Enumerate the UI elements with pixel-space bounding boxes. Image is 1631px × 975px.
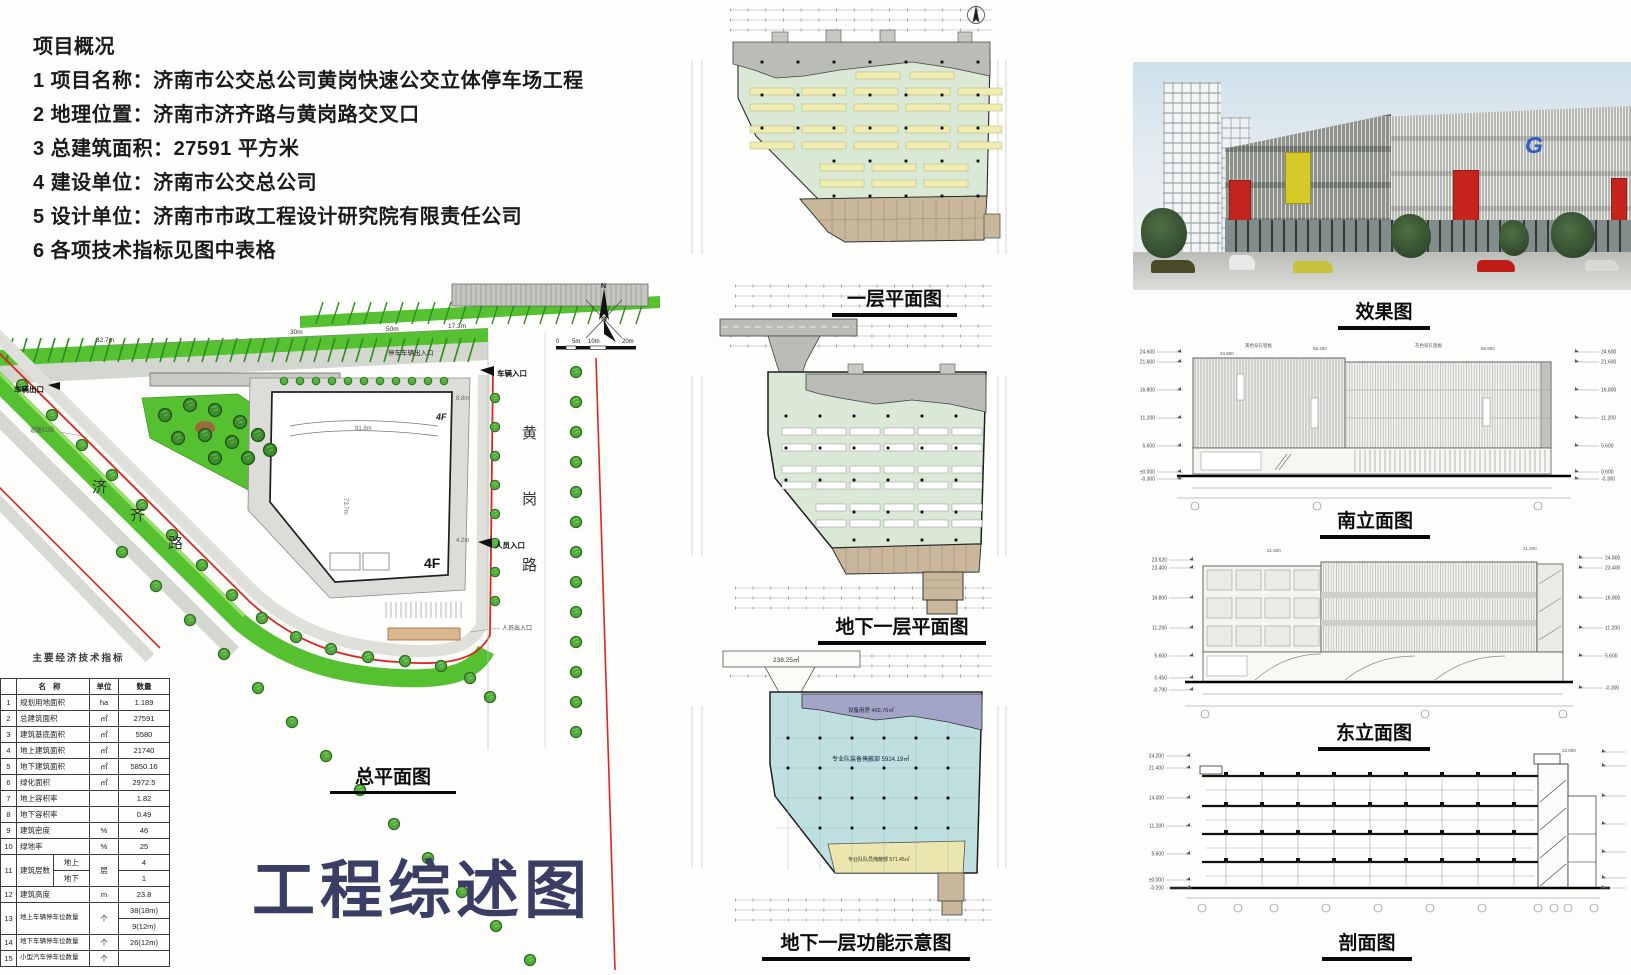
tree-icon bbox=[570, 636, 581, 647]
basement-function-diagram: 238.25㎡ 设备用房 469.76㎡ 专业队装备掩蔽部 5924.19㎡ 专… bbox=[680, 646, 1012, 928]
stall-strip bbox=[854, 104, 898, 111]
svg-text:21.200: 21.200 bbox=[1523, 546, 1537, 551]
road-name-char: 齐 bbox=[130, 507, 145, 524]
column-dot bbox=[833, 94, 836, 97]
tree-icon bbox=[184, 614, 195, 625]
level-value: -0.300 bbox=[1601, 477, 1615, 483]
table-row: 10绿地率%25 bbox=[1, 839, 170, 855]
stall-strip bbox=[918, 520, 948, 527]
tree-icon bbox=[570, 486, 581, 497]
stall-strip bbox=[918, 428, 948, 435]
road-name-char: 路 bbox=[168, 535, 183, 552]
tree-icon bbox=[344, 377, 352, 385]
level-value: 23.620 bbox=[1152, 558, 1168, 564]
car bbox=[1151, 260, 1195, 273]
table-cell: 地下 bbox=[53, 871, 90, 887]
column-head bbox=[1296, 858, 1300, 862]
table-cell: 建筑高度 bbox=[17, 887, 90, 903]
level-triangle-icon bbox=[1575, 469, 1579, 473]
column-dot bbox=[761, 61, 764, 64]
table-row: 2总建筑面积㎡27591 bbox=[1, 711, 170, 727]
column-head bbox=[1332, 858, 1336, 862]
level-value: 23.400 bbox=[1605, 566, 1621, 572]
tree-icon bbox=[242, 452, 255, 465]
room-extension bbox=[984, 214, 1000, 238]
table-row: 9建筑密度%46 bbox=[1, 823, 170, 839]
eco-table-body: 1规划用地面积ha1.1892总建筑面积㎡275913建筑基底面积㎡55804地… bbox=[1, 695, 170, 967]
tree-icon bbox=[280, 377, 288, 385]
grid-bubble bbox=[1478, 904, 1486, 912]
column-dot bbox=[915, 797, 918, 800]
tree-icon bbox=[290, 631, 301, 642]
table-cell: 建筑层数 bbox=[17, 855, 54, 887]
stall-strip bbox=[820, 164, 864, 171]
table-cell: 地下建筑面积 bbox=[17, 759, 90, 775]
level-triangle-icon bbox=[1189, 595, 1193, 599]
level-triangle-icon bbox=[1575, 415, 1579, 419]
level-value: 5.600 bbox=[1142, 444, 1155, 450]
sheet-main-title: 工程综述图 bbox=[252, 840, 592, 931]
grid-bubble bbox=[1534, 502, 1542, 510]
column-dot bbox=[977, 61, 980, 64]
column-head bbox=[1332, 802, 1336, 806]
tree-icon bbox=[226, 436, 239, 449]
grid-bubbles bbox=[1198, 904, 1598, 912]
column-dot bbox=[819, 797, 822, 800]
stall-strip bbox=[910, 72, 954, 79]
tree-icon bbox=[362, 651, 373, 662]
column-dot bbox=[977, 160, 980, 163]
scale-bar: 0 5m 10m 20m bbox=[556, 339, 636, 350]
svg-text:32.7m: 32.7m bbox=[96, 337, 114, 344]
column-dot bbox=[921, 479, 924, 482]
overview-title: 项目概况 bbox=[33, 30, 593, 64]
red-facade-panel bbox=[1453, 170, 1479, 226]
table-cell bbox=[90, 807, 119, 823]
column-dot bbox=[977, 127, 980, 130]
table-cell: 小型汽车停车位数量 bbox=[17, 951, 90, 967]
table-row: 8地下容积率0.49 bbox=[1, 807, 170, 823]
grid-bubble bbox=[1564, 904, 1572, 912]
east-elevation: 21.600 21.200 23.62023.40016.80011.2005.… bbox=[1125, 540, 1631, 722]
level-value: 16.800 bbox=[1152, 596, 1168, 602]
tree-icon bbox=[46, 409, 57, 420]
stall-strip bbox=[952, 482, 982, 489]
tree-icon bbox=[286, 716, 297, 727]
stall-strip bbox=[782, 482, 812, 489]
svg-text:0: 0 bbox=[556, 339, 560, 345]
column-head bbox=[1368, 772, 1372, 776]
level-value: 11.200 bbox=[1605, 626, 1620, 632]
stair-bump bbox=[826, 30, 841, 42]
stall-strip bbox=[816, 466, 846, 473]
level-triangle-icon bbox=[1177, 469, 1181, 473]
stall-strip bbox=[850, 466, 880, 473]
column-head bbox=[1512, 802, 1516, 806]
people-access-label: 人员出入口 bbox=[502, 624, 532, 632]
table-cell: 5 bbox=[1, 759, 17, 775]
stall-strip bbox=[750, 104, 794, 111]
tree-icon bbox=[570, 696, 581, 707]
overview-line: 5 设计单位：济南市市政工程设计研究院有限责任公司 bbox=[33, 200, 593, 234]
stall-strip bbox=[850, 428, 880, 435]
stall-strip bbox=[924, 180, 968, 187]
material-label: 灰色穿孔铝板 bbox=[1415, 342, 1442, 349]
column-dot bbox=[819, 479, 822, 482]
column-head bbox=[1404, 830, 1408, 834]
stall-strip bbox=[884, 428, 914, 435]
column-dot bbox=[977, 195, 980, 198]
grid-bubble bbox=[1198, 904, 1206, 912]
tree-icon bbox=[252, 682, 263, 693]
level-value: -0.300 bbox=[1141, 477, 1155, 483]
column-dot bbox=[921, 415, 924, 418]
north-arrow-icon bbox=[973, 5, 980, 23]
project-overview: 项目概况 1 项目名称：济南市公交总公司黄岗快速公交立体停车场工程 2 地理位置… bbox=[33, 30, 593, 268]
table-cell: 个 bbox=[90, 935, 119, 951]
people-entrance-label: 人员入口 bbox=[495, 541, 525, 550]
table-cell: 8 bbox=[1, 807, 17, 823]
service-rooms-band bbox=[832, 544, 981, 574]
table-cell: 13 bbox=[1, 903, 17, 935]
grid-bubble bbox=[1426, 904, 1434, 912]
fin-facade bbox=[1321, 562, 1537, 652]
column-dot bbox=[869, 127, 872, 130]
stall-strip bbox=[802, 104, 846, 111]
grid-bubble bbox=[1550, 904, 1558, 912]
road-name-char: 路 bbox=[522, 557, 537, 574]
level-value: 21.600 bbox=[1601, 360, 1617, 366]
column-dot bbox=[887, 415, 890, 418]
table-cell: 0.49 bbox=[119, 807, 170, 823]
column-head bbox=[1260, 858, 1264, 862]
table-cell: 地上车辆停车位数量 bbox=[17, 903, 90, 935]
column-dot bbox=[921, 511, 924, 514]
south-elevation: 黄色穿孔铝板 23.800 56.400 灰色穿孔铝板 56.800 24.60… bbox=[1125, 336, 1631, 514]
tree-icon bbox=[296, 377, 304, 385]
column-dot bbox=[853, 511, 856, 514]
van bbox=[1229, 255, 1255, 270]
ramp-area-label: 238.25㎡ bbox=[773, 655, 800, 664]
column-dot bbox=[833, 160, 836, 163]
column-head bbox=[1440, 830, 1444, 834]
tree-icon bbox=[184, 399, 197, 412]
table-cell: 3 bbox=[1, 727, 17, 743]
tree-icon bbox=[218, 648, 229, 659]
stall-strip bbox=[952, 466, 982, 473]
stair-bump bbox=[772, 32, 788, 42]
window bbox=[1265, 626, 1290, 646]
svg-text:5m: 5m bbox=[572, 339, 580, 345]
column-dot bbox=[819, 767, 822, 770]
level-triangle-icon bbox=[1602, 793, 1606, 797]
stair-core bbox=[330, 553, 360, 570]
column-dot bbox=[955, 479, 958, 482]
stall-strip bbox=[802, 126, 846, 133]
column-dot bbox=[833, 61, 836, 64]
tree-icon bbox=[490, 567, 499, 576]
table-cell bbox=[119, 951, 170, 967]
column-dot bbox=[921, 447, 924, 450]
stall-strip bbox=[918, 466, 948, 473]
table-cell: 26(12m) bbox=[119, 935, 170, 951]
table-cell: ㎡ bbox=[90, 759, 119, 775]
table-cell: 27591 bbox=[119, 711, 170, 727]
table-cell: 23.8 bbox=[119, 887, 170, 903]
svg-text:21.600: 21.600 bbox=[1267, 548, 1281, 553]
column-dot bbox=[883, 767, 886, 770]
north-label: N bbox=[601, 283, 606, 290]
car bbox=[1585, 260, 1619, 271]
column-head bbox=[1224, 858, 1228, 862]
table-cell: 地下容积率 bbox=[17, 807, 90, 823]
level-triangle-icon bbox=[1602, 763, 1606, 767]
svg-text:50m: 50m bbox=[386, 326, 399, 333]
table-row: 11建筑层数地上层4 bbox=[1, 855, 170, 871]
column-dot bbox=[947, 767, 950, 770]
column-dot bbox=[833, 195, 836, 198]
column-dot bbox=[915, 737, 918, 740]
column-dot bbox=[905, 94, 908, 97]
svg-text:30m: 30m bbox=[290, 329, 303, 336]
window bbox=[1207, 626, 1232, 646]
table-title: 主要经济技术指标 bbox=[0, 650, 157, 664]
grid-bubble bbox=[1559, 710, 1567, 718]
level-value: 24.800 bbox=[1605, 556, 1621, 562]
section-title: 剖面图 bbox=[1322, 928, 1412, 961]
table-row: 15小型汽车停车位数量个 bbox=[1, 951, 170, 967]
tree-icon bbox=[484, 691, 495, 702]
tree-icon bbox=[312, 377, 320, 385]
room-extension bbox=[923, 572, 963, 600]
level-triangle-icon bbox=[1189, 653, 1193, 657]
table-cell: 4 bbox=[1, 743, 17, 759]
column-dot bbox=[869, 61, 872, 64]
stall-strip bbox=[924, 164, 968, 171]
column-head bbox=[1512, 830, 1516, 834]
ramp-funnel bbox=[768, 336, 820, 374]
window bbox=[1294, 598, 1319, 618]
tree-icon bbox=[490, 480, 499, 489]
window bbox=[1207, 598, 1232, 618]
window bbox=[1265, 570, 1290, 590]
column-dot bbox=[869, 160, 872, 163]
stall-strip bbox=[750, 142, 794, 149]
overview-line: 3 总建筑面积：27591 平方米 bbox=[33, 132, 593, 166]
road-name-char: 岗 bbox=[522, 491, 537, 508]
stall-strip bbox=[850, 520, 880, 527]
column-dot bbox=[797, 61, 800, 64]
stall-strip bbox=[802, 88, 846, 95]
tree-icon bbox=[570, 396, 581, 407]
column-dot bbox=[887, 539, 890, 542]
arrow-icon bbox=[480, 366, 494, 376]
svg-text:81.8m: 81.8m bbox=[355, 426, 372, 432]
table-cell: 绿化面积 bbox=[17, 775, 90, 791]
column-dot bbox=[915, 767, 918, 770]
svg-text:23.600: 23.600 bbox=[1562, 748, 1576, 753]
tree-icon bbox=[464, 672, 475, 683]
tree-icon bbox=[159, 409, 172, 422]
column-head bbox=[1332, 830, 1336, 834]
column-dot bbox=[915, 827, 918, 830]
ground-floor-plan bbox=[680, 0, 1012, 314]
level-triangle-icon bbox=[1189, 557, 1193, 561]
zone-label-plant: 设备用房 469.76㎡ bbox=[848, 706, 894, 714]
table-row: 5地下建筑面积㎡5850.16 bbox=[1, 759, 170, 775]
building-section: 23.600 24.20021.40014.00011.2005.600±0.0… bbox=[1130, 736, 1626, 922]
column-dot bbox=[955, 415, 958, 418]
stall-strip bbox=[884, 466, 914, 473]
tree-icon bbox=[388, 818, 399, 829]
level-value: 16.800 bbox=[1605, 596, 1621, 602]
level-triangle-icon bbox=[1575, 443, 1579, 447]
tree bbox=[1551, 212, 1595, 258]
column-head bbox=[1440, 858, 1444, 862]
tree-icon bbox=[106, 469, 117, 480]
stall-strip bbox=[854, 142, 898, 149]
floor-band bbox=[1321, 620, 1537, 626]
column-dot bbox=[851, 827, 854, 830]
column-dot bbox=[941, 94, 944, 97]
table-cell: 地上建筑面积 bbox=[17, 743, 90, 759]
tree-icon bbox=[570, 366, 581, 377]
street bbox=[1133, 252, 1631, 290]
column-head bbox=[1332, 772, 1336, 776]
column-dot bbox=[851, 737, 854, 740]
level-value: ±0.000 bbox=[1140, 470, 1155, 476]
table-cell: % bbox=[90, 839, 119, 855]
road-name-char: 黄 bbox=[522, 425, 537, 442]
plan2-title: 地下一层平面图 bbox=[818, 612, 986, 645]
fin-facade bbox=[1193, 358, 1345, 448]
tree-icon bbox=[150, 580, 161, 591]
stall-strip bbox=[906, 88, 950, 95]
car bbox=[1293, 261, 1333, 273]
tree-icon bbox=[252, 429, 265, 442]
zone-label-storage: 专业队装备掩蔽部 5924.19㎡ bbox=[832, 755, 909, 763]
table-cell: 46 bbox=[119, 823, 170, 839]
table-cell: 25 bbox=[119, 839, 170, 855]
table-cell: ㎡ bbox=[90, 743, 119, 759]
tree-icon bbox=[376, 377, 384, 385]
table-cell: 11 bbox=[1, 855, 17, 887]
window bbox=[1236, 598, 1261, 618]
table-row: 3建筑基底面积㎡5580 bbox=[1, 727, 170, 743]
tree-icon bbox=[408, 377, 416, 385]
svg-text:4.2m: 4.2m bbox=[456, 538, 469, 544]
stair-bump bbox=[958, 32, 972, 42]
tree bbox=[1141, 208, 1187, 258]
column-dot bbox=[887, 447, 890, 450]
table-cell: 建筑基底面积 bbox=[17, 727, 90, 743]
tree-icon bbox=[570, 546, 581, 557]
stall-strip bbox=[958, 142, 1002, 149]
level-triangle-icon bbox=[1186, 823, 1190, 827]
level-triangle-icon bbox=[1579, 565, 1583, 569]
column-dot bbox=[947, 827, 950, 830]
tree-icon bbox=[490, 393, 499, 402]
table-cell: 5850.16 bbox=[119, 759, 170, 775]
stall-strip bbox=[854, 88, 898, 95]
stall-strip bbox=[816, 504, 846, 511]
column-dot bbox=[797, 94, 800, 97]
road-name-huanggang: 黄岗路 bbox=[522, 425, 537, 574]
drawing-sheet: 项目概况 1 项目名称：济南市公交总公司黄岗快速公交立体停车场工程 2 地理位置… bbox=[0, 0, 1631, 975]
column-head bbox=[1224, 802, 1228, 806]
stall-strip bbox=[884, 504, 914, 511]
column-dot bbox=[797, 127, 800, 130]
room-extension bbox=[938, 873, 964, 901]
column-head bbox=[1260, 802, 1264, 806]
column-dot bbox=[819, 827, 822, 830]
stall-strip bbox=[750, 88, 794, 95]
column-head bbox=[1260, 830, 1264, 834]
indicator-table: 名称 单位 数量 1规划用地面积ha1.1892总建筑面积㎡275913建筑基底… bbox=[0, 678, 170, 967]
table-cell: 1 bbox=[119, 871, 170, 887]
level-value: 14.000 bbox=[1149, 796, 1165, 802]
tree-icon bbox=[199, 429, 212, 442]
tree-icon bbox=[209, 452, 222, 465]
building-floors-label: 4F bbox=[424, 555, 441, 571]
table-cell: 个 bbox=[90, 951, 119, 967]
level-value: 11.200 bbox=[1149, 824, 1164, 830]
tree-icon bbox=[435, 660, 446, 671]
level-value: 24.600 bbox=[1601, 350, 1617, 356]
stall-strip bbox=[816, 482, 846, 489]
table-cell: 层 bbox=[90, 855, 119, 887]
window-slot bbox=[1237, 374, 1244, 400]
column-dot bbox=[787, 767, 790, 770]
table-cell: 38(18m) bbox=[119, 903, 170, 919]
tree-icon bbox=[320, 750, 331, 761]
table-row: 4地上建筑面积㎡21740 bbox=[1, 743, 170, 759]
level-triangle-icon bbox=[1575, 476, 1579, 480]
table-cell: 地上容积率 bbox=[17, 791, 90, 807]
level-value: 21.600 bbox=[1140, 360, 1156, 366]
corner-pier bbox=[1541, 362, 1551, 448]
stall-strip bbox=[850, 504, 880, 511]
material-label: 黄色穿孔铝板 bbox=[1245, 342, 1272, 349]
level-triangle-icon bbox=[1579, 555, 1583, 559]
overview-line: 1 项目名称：济南市公交总公司黄岗快速公交立体停车场工程 bbox=[33, 64, 593, 98]
grid-bubble bbox=[1421, 710, 1429, 718]
table-cell: 9 bbox=[1, 823, 17, 839]
table-cell: 地下车辆停车位数量 bbox=[17, 935, 90, 951]
stall-strip bbox=[782, 466, 812, 473]
column-head bbox=[1296, 802, 1300, 806]
column-dot bbox=[977, 94, 980, 97]
table-cell: 地上 bbox=[53, 855, 90, 871]
level-triangle-icon bbox=[1186, 877, 1190, 881]
tree-icon bbox=[570, 426, 581, 437]
basement-floor-plan bbox=[680, 316, 1012, 616]
column-dot bbox=[833, 127, 836, 130]
parking-access-label: 停车车辆出入口 bbox=[388, 348, 434, 357]
table-cell: 5580 bbox=[119, 727, 170, 743]
floor-band bbox=[1321, 592, 1537, 598]
grid-bubble bbox=[1191, 502, 1199, 510]
stair-bump bbox=[940, 364, 955, 374]
stall-strip bbox=[958, 104, 1002, 111]
svg-text:10m: 10m bbox=[588, 339, 600, 345]
level-value: 5.600 bbox=[1151, 852, 1164, 858]
level-triangle-icon bbox=[1189, 565, 1193, 569]
level-value: -0.300 bbox=[1605, 686, 1619, 692]
window-slot bbox=[1483, 398, 1490, 426]
column-head bbox=[1260, 772, 1264, 776]
stall-strip bbox=[918, 504, 948, 511]
